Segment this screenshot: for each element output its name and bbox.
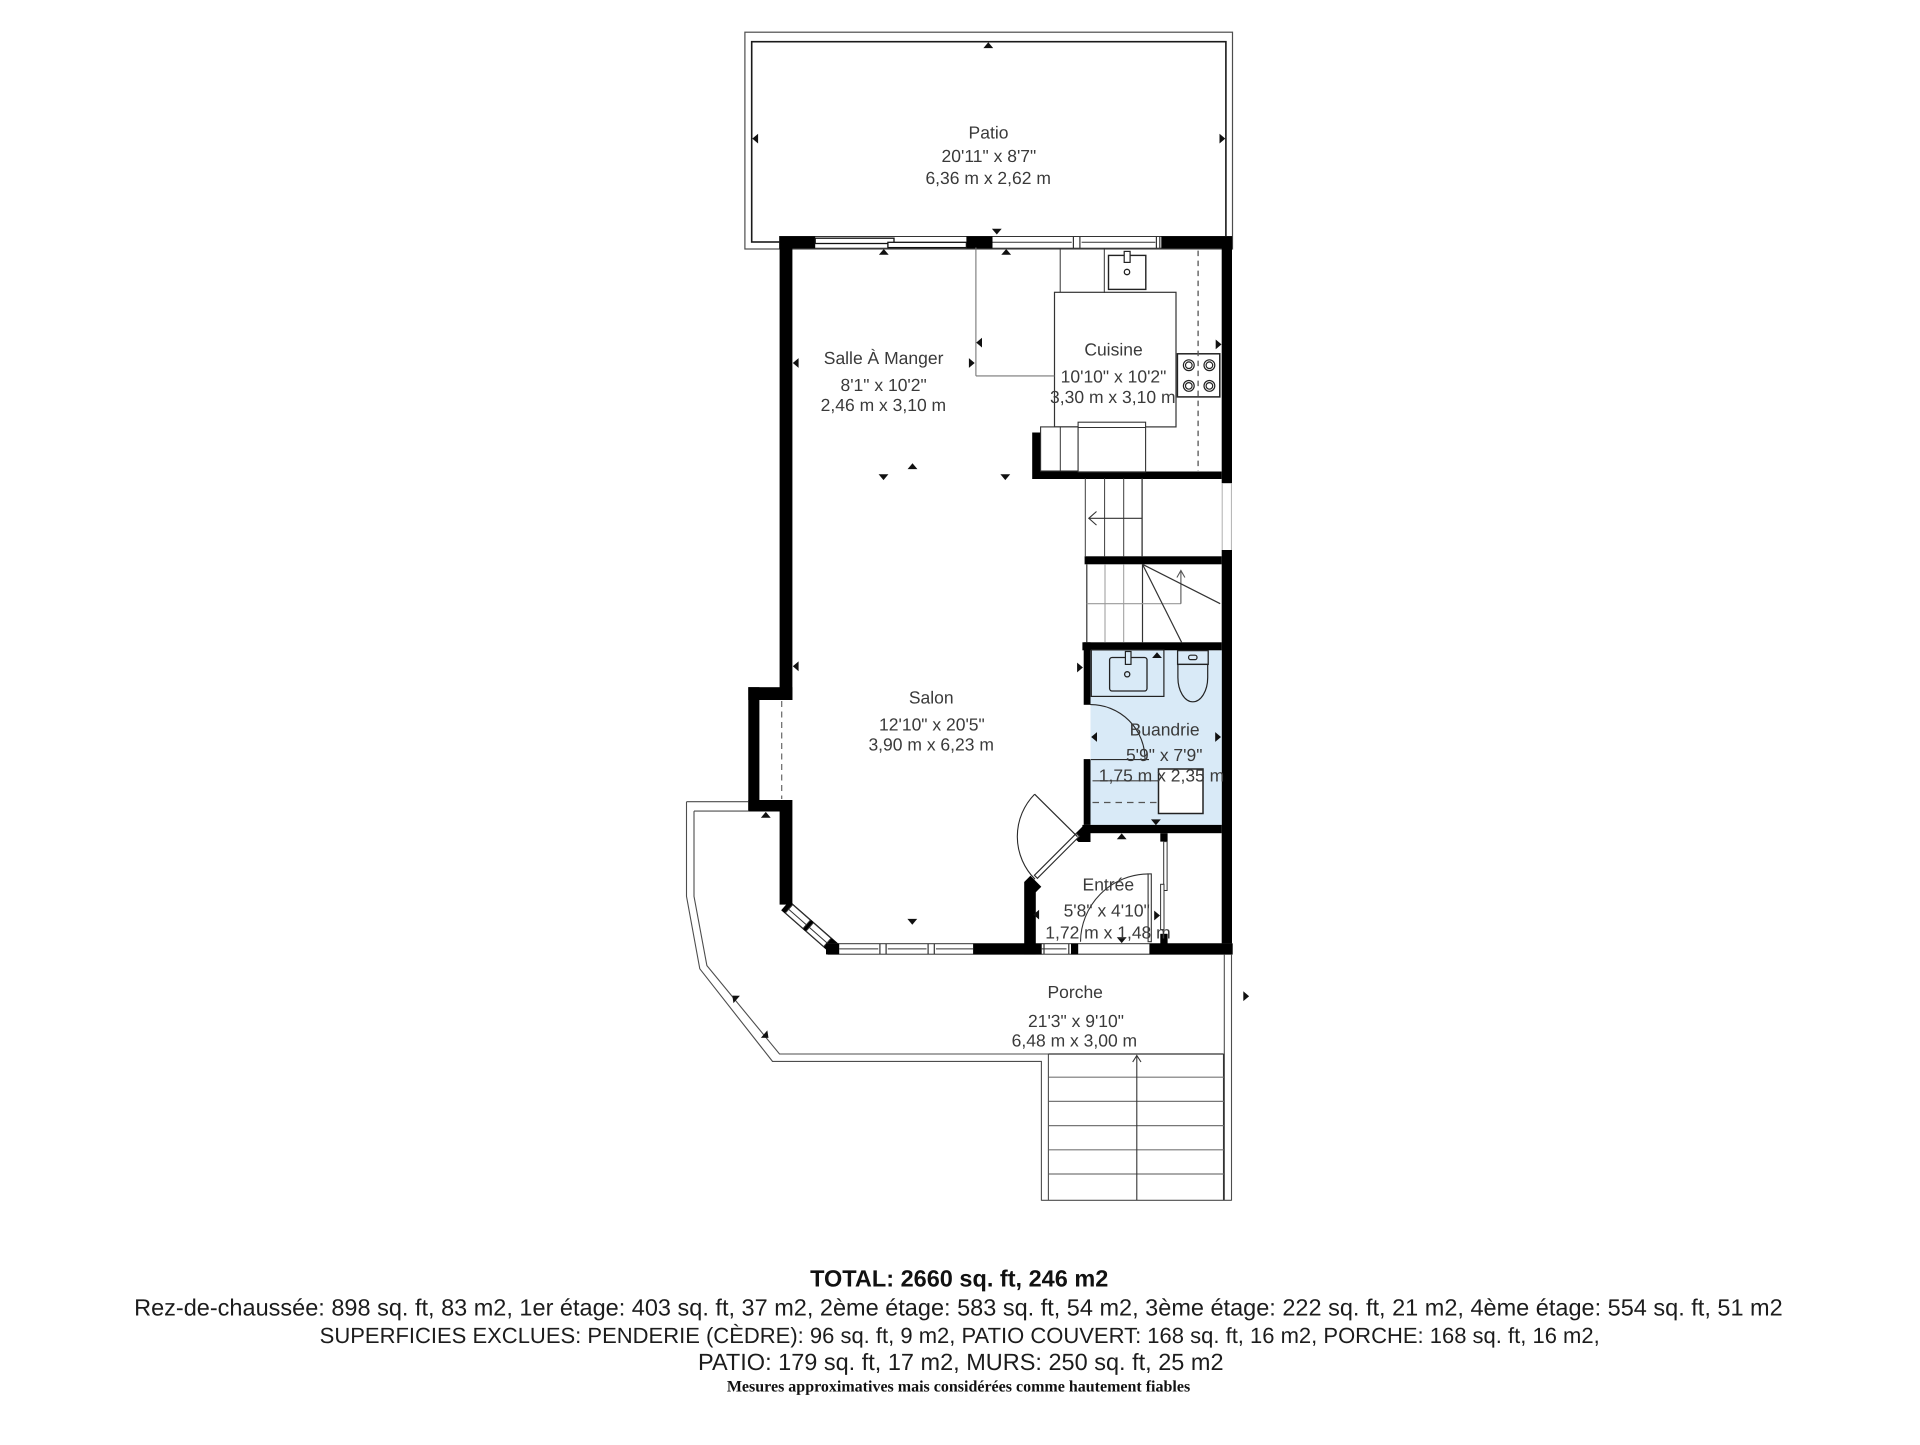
svg-text:1,75 m x 2,35 m: 1,75 m x 2,35 m	[1099, 766, 1224, 786]
svg-text:Buandrie: Buandrie	[1130, 719, 1200, 739]
svg-text:8'1" x 10'2": 8'1" x 10'2"	[840, 375, 926, 395]
svg-text:10'10" x 10'2": 10'10" x 10'2"	[1061, 366, 1167, 386]
svg-text:5'9" x 7'9": 5'9" x 7'9"	[1126, 745, 1203, 765]
svg-text:PATIO: 179 sq. ft, 17 m2, MURS: PATIO: 179 sq. ft, 17 m2, MURS: 250 sq. …	[698, 1349, 1223, 1375]
svg-text:Cuisine: Cuisine	[1084, 340, 1142, 360]
svg-text:5'8" x 4'10": 5'8" x 4'10"	[1064, 901, 1150, 921]
svg-text:Mesures approximatives mais co: Mesures approximatives mais considérées …	[727, 1379, 1190, 1396]
svg-text:6,48 m x 3,00 m: 6,48 m x 3,00 m	[1012, 1031, 1137, 1051]
svg-text:Entrée: Entrée	[1083, 875, 1135, 895]
svg-text:3,90 m x 6,23 m: 3,90 m x 6,23 m	[868, 734, 993, 754]
svg-text:1,72 m x 1,48 m: 1,72 m x 1,48 m	[1045, 922, 1170, 942]
svg-text:12'10" x 20'5": 12'10" x 20'5"	[879, 714, 985, 734]
svg-text:SUPERFICIES EXCLUES: PENDERIE: SUPERFICIES EXCLUES: PENDERIE (CÈDRE): 9…	[320, 1323, 1600, 1348]
svg-text:Salon: Salon	[909, 687, 954, 707]
svg-text:20'11" x 8'7": 20'11" x 8'7"	[942, 146, 1037, 166]
svg-text:Salle À Manger: Salle À Manger	[824, 348, 944, 368]
svg-text:Patio: Patio	[969, 123, 1009, 143]
svg-text:Rez-de-chaussée: 898 sq. ft, 8: Rez-de-chaussée: 898 sq. ft, 83 m2, 1er …	[134, 1295, 1783, 1321]
svg-text:21'3" x 9'10": 21'3" x 9'10"	[1028, 1011, 1124, 1031]
svg-text:TOTAL: 2660 sq. ft, 246 m2: TOTAL: 2660 sq. ft, 246 m2	[810, 1266, 1108, 1292]
svg-text:2,46 m x 3,10 m: 2,46 m x 3,10 m	[821, 395, 946, 415]
svg-text:Porche: Porche	[1047, 982, 1102, 1002]
svg-text:6,36 m x 2,62 m: 6,36 m x 2,62 m	[925, 168, 1050, 188]
svg-text:3,30 m x 3,10 m: 3,30 m x 3,10 m	[1050, 387, 1175, 407]
